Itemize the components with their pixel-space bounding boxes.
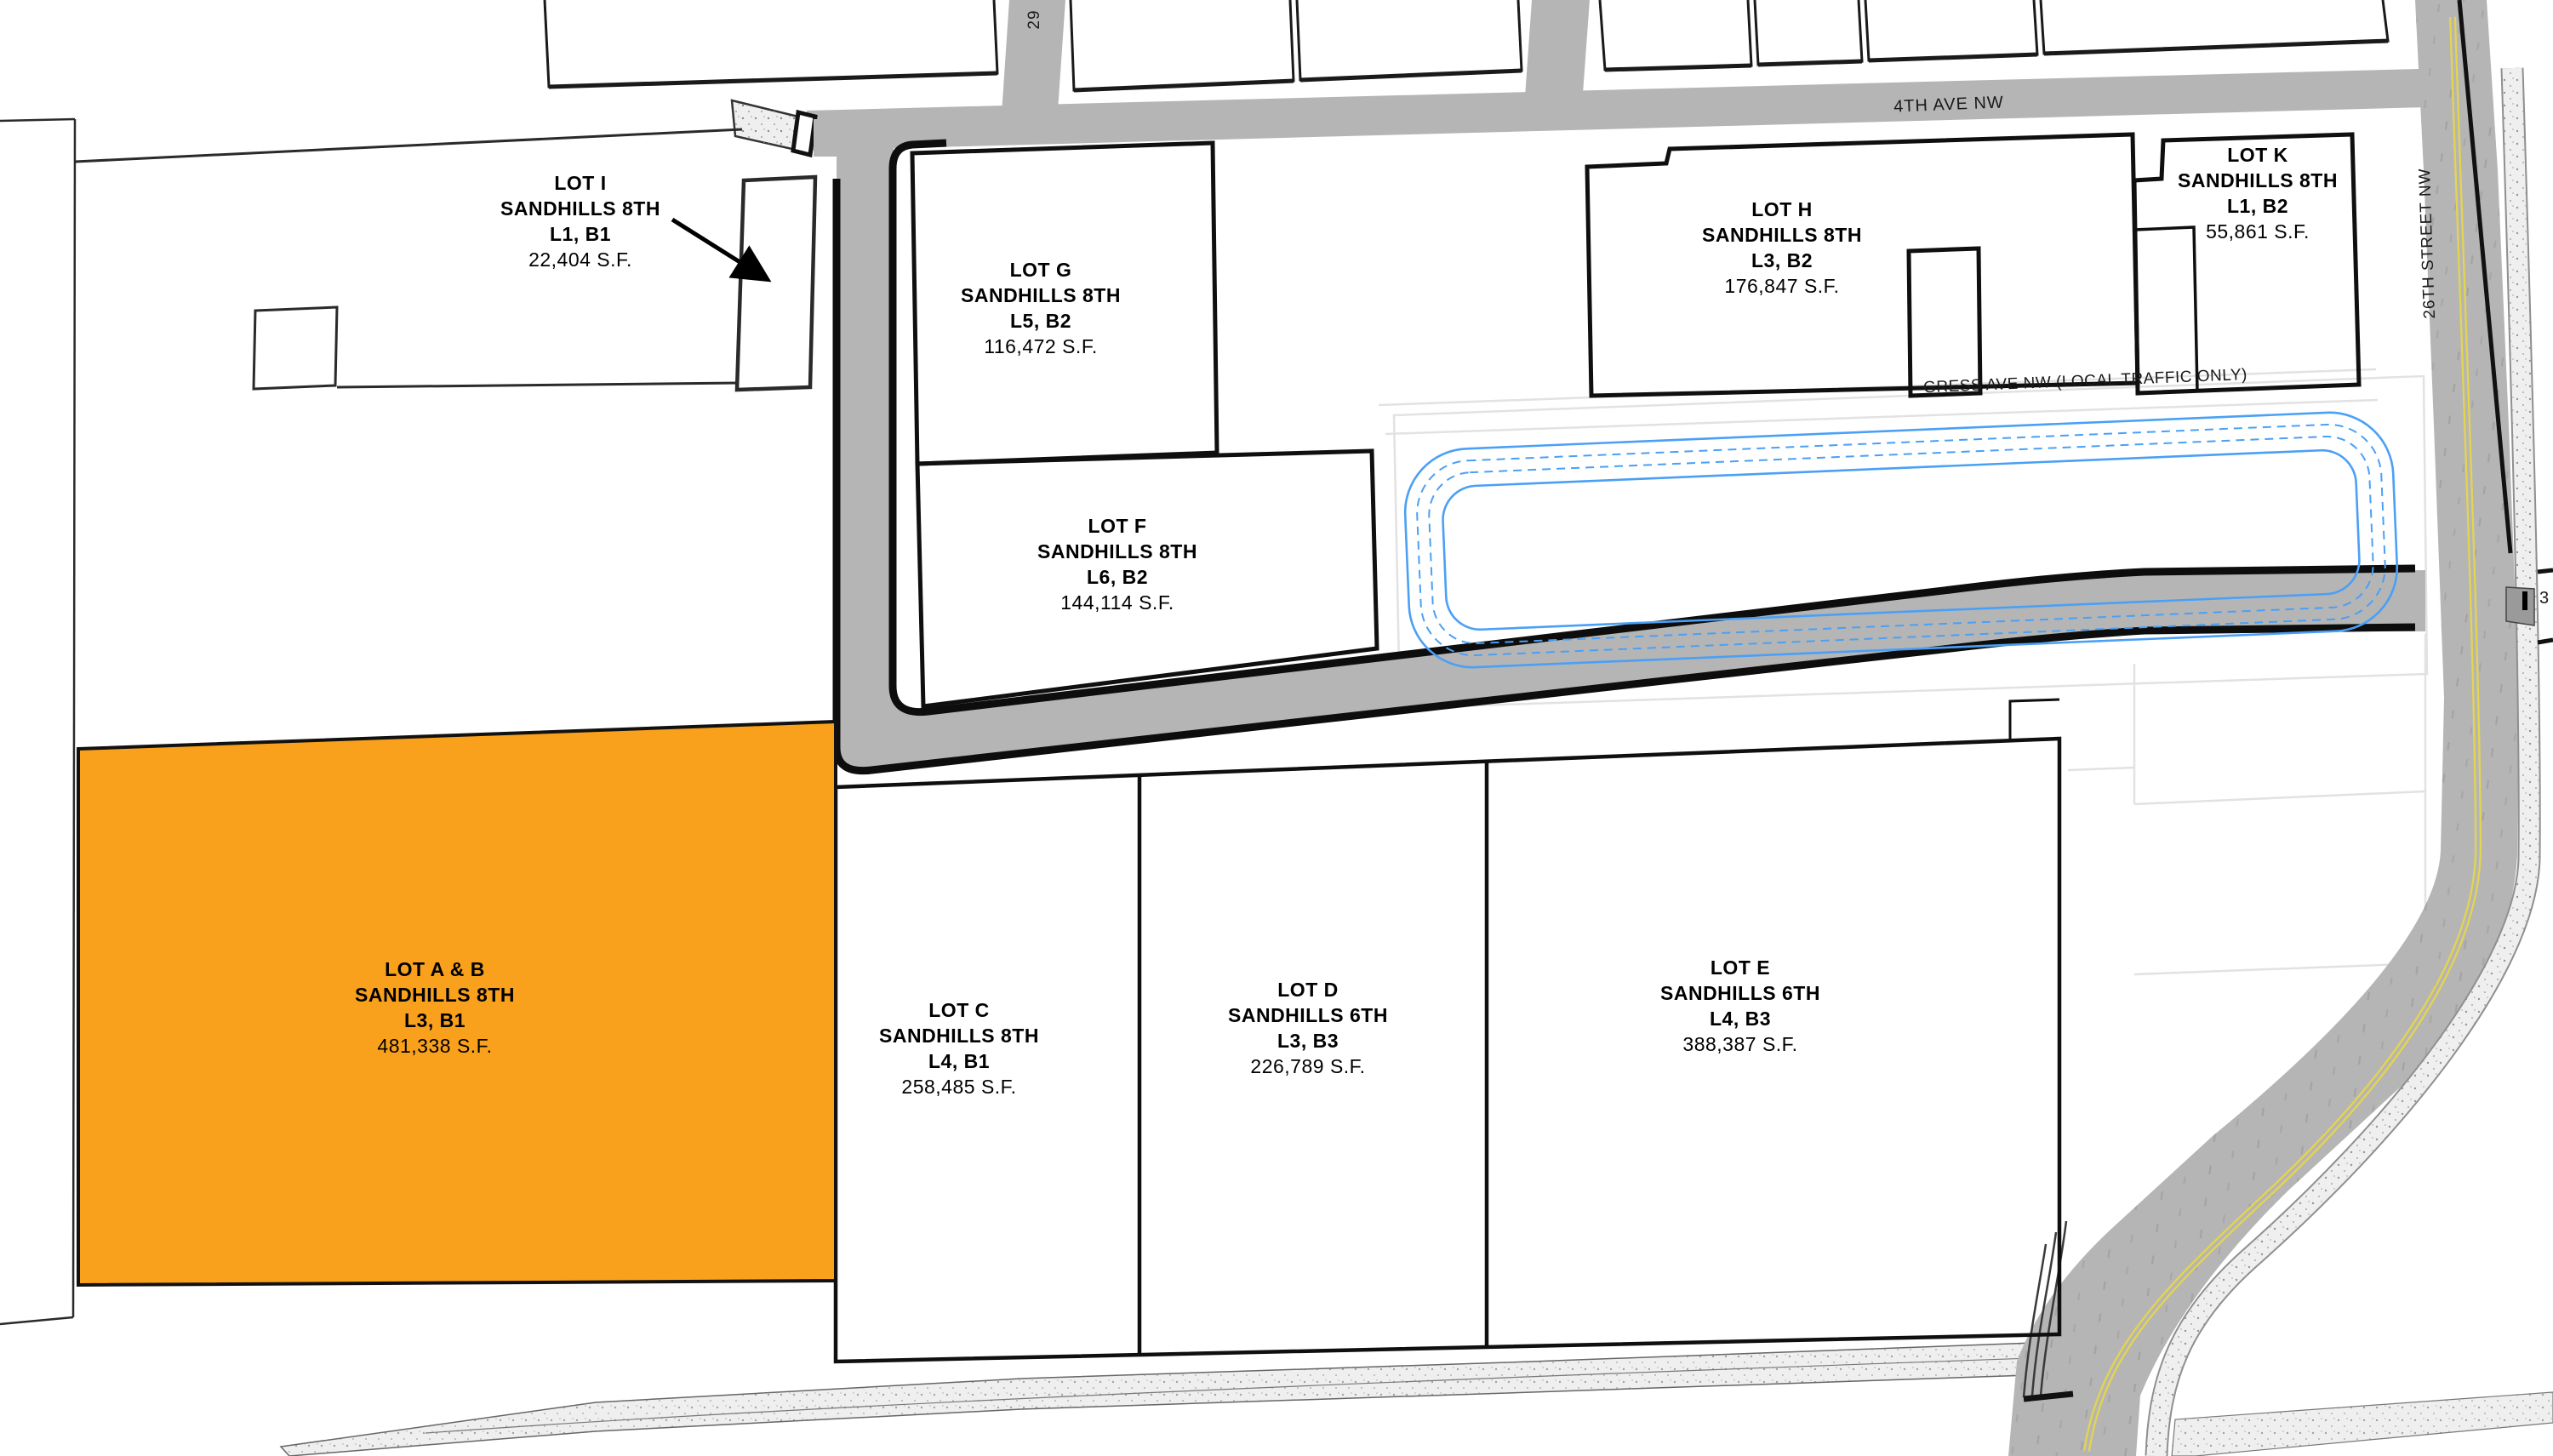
lot-parcel: L4, B1 [823, 1048, 1095, 1074]
lot-area: 55,861 S.F. [2122, 219, 2394, 244]
road-top-street [1525, 0, 1590, 97]
lot-plat: SANDHILLS 8TH [905, 283, 1177, 308]
lot-area: 176,847 S.F. [1646, 273, 1918, 299]
lot-label-g[interactable]: LOT G SANDHILLS 8TH L5, B2 116,472 S.F. [905, 257, 1177, 359]
lot-plat: SANDHILLS 6TH [1604, 980, 1876, 1006]
lot-label-f[interactable]: LOT F SANDHILLS 8TH L6, B2 144,114 S.F. [981, 513, 1254, 615]
lot-label-d[interactable]: LOT D SANDHILLS 6TH L3, B3 226,789 S.F. [1172, 977, 1444, 1079]
lot-label-h[interactable]: LOT H SANDHILLS 8TH L3, B2 176,847 S.F. [1646, 197, 1918, 299]
street-label-29th-st: 29 [1025, 3, 1044, 37]
lot-area: 22,404 S.F. [444, 247, 717, 272]
lot-area: 226,789 S.F. [1172, 1053, 1444, 1079]
lot-name: LOT D [1172, 977, 1444, 1002]
lot-parcel: L5, B2 [905, 308, 1177, 334]
lot-area: 481,338 S.F. [299, 1033, 571, 1059]
lot-i-parcel [737, 177, 815, 390]
lot-plat: SANDHILLS 8TH [823, 1023, 1095, 1048]
lot-parcel: L6, B2 [981, 564, 1254, 590]
lot-name: LOT G [905, 257, 1177, 283]
edge-marker-3: 3 [2539, 589, 2550, 608]
lot-plat: SANDHILLS 8TH [981, 539, 1254, 564]
lot-label-ab[interactable]: LOT A & B SANDHILLS 8TH L3, B1 481,338 S… [299, 956, 571, 1059]
lot-name: LOT K [2122, 142, 2394, 168]
lot-area: 388,387 S.F. [1604, 1031, 1876, 1057]
lot-parcel: L3, B2 [1646, 248, 1918, 273]
lot-plat: SANDHILLS 6TH [1172, 1002, 1444, 1028]
lot-plat: SANDHILLS 8TH [299, 982, 571, 1008]
lot-parcel: L1, B2 [2122, 193, 2394, 219]
bottom-path-band [281, 1341, 2553, 1456]
lot-area: 116,472 S.F. [905, 334, 1177, 359]
lot-name: LOT A & B [299, 956, 571, 982]
lot-name: LOT C [823, 997, 1095, 1023]
lot-plat: SANDHILLS 8TH [2122, 168, 2394, 193]
future-road-stub [732, 100, 837, 157]
lot-plat: SANDHILLS 8TH [1646, 222, 1918, 248]
lot-area: 144,114 S.F. [981, 590, 1254, 615]
lot-label-i[interactable]: LOT I SANDHILLS 8TH L1, B1 22,404 S.F. [444, 170, 717, 272]
lot-plat: SANDHILLS 8TH [444, 196, 717, 221]
lot-parcel: L1, B1 [444, 221, 717, 247]
lot-label-k[interactable]: LOT K SANDHILLS 8TH L1, B2 55,861 S.F. [2122, 142, 2394, 244]
lot-name: LOT H [1646, 197, 1918, 222]
lot-name: LOT E [1604, 955, 1876, 980]
lot-label-c[interactable]: LOT C SANDHILLS 8TH L4, B1 258,485 S.F. [823, 997, 1095, 1099]
lot-parcel: L4, B3 [1604, 1006, 1876, 1031]
lot-label-e[interactable]: LOT E SANDHILLS 6TH L4, B3 388,387 S.F. [1604, 955, 1876, 1057]
lot-parcel: L3, B3 [1172, 1028, 1444, 1053]
lot-name: LOT F [981, 513, 1254, 539]
plat-map: LOT I SANDHILLS 8TH L1, B1 22,404 S.F. L… [0, 0, 2553, 1456]
lot-parcel: L3, B1 [299, 1008, 571, 1033]
lot-name: LOT I [444, 170, 717, 196]
lot-area: 258,485 S.F. [823, 1074, 1095, 1099]
top-lots [545, 0, 2388, 90]
lot-h-notch [1909, 248, 1980, 396]
